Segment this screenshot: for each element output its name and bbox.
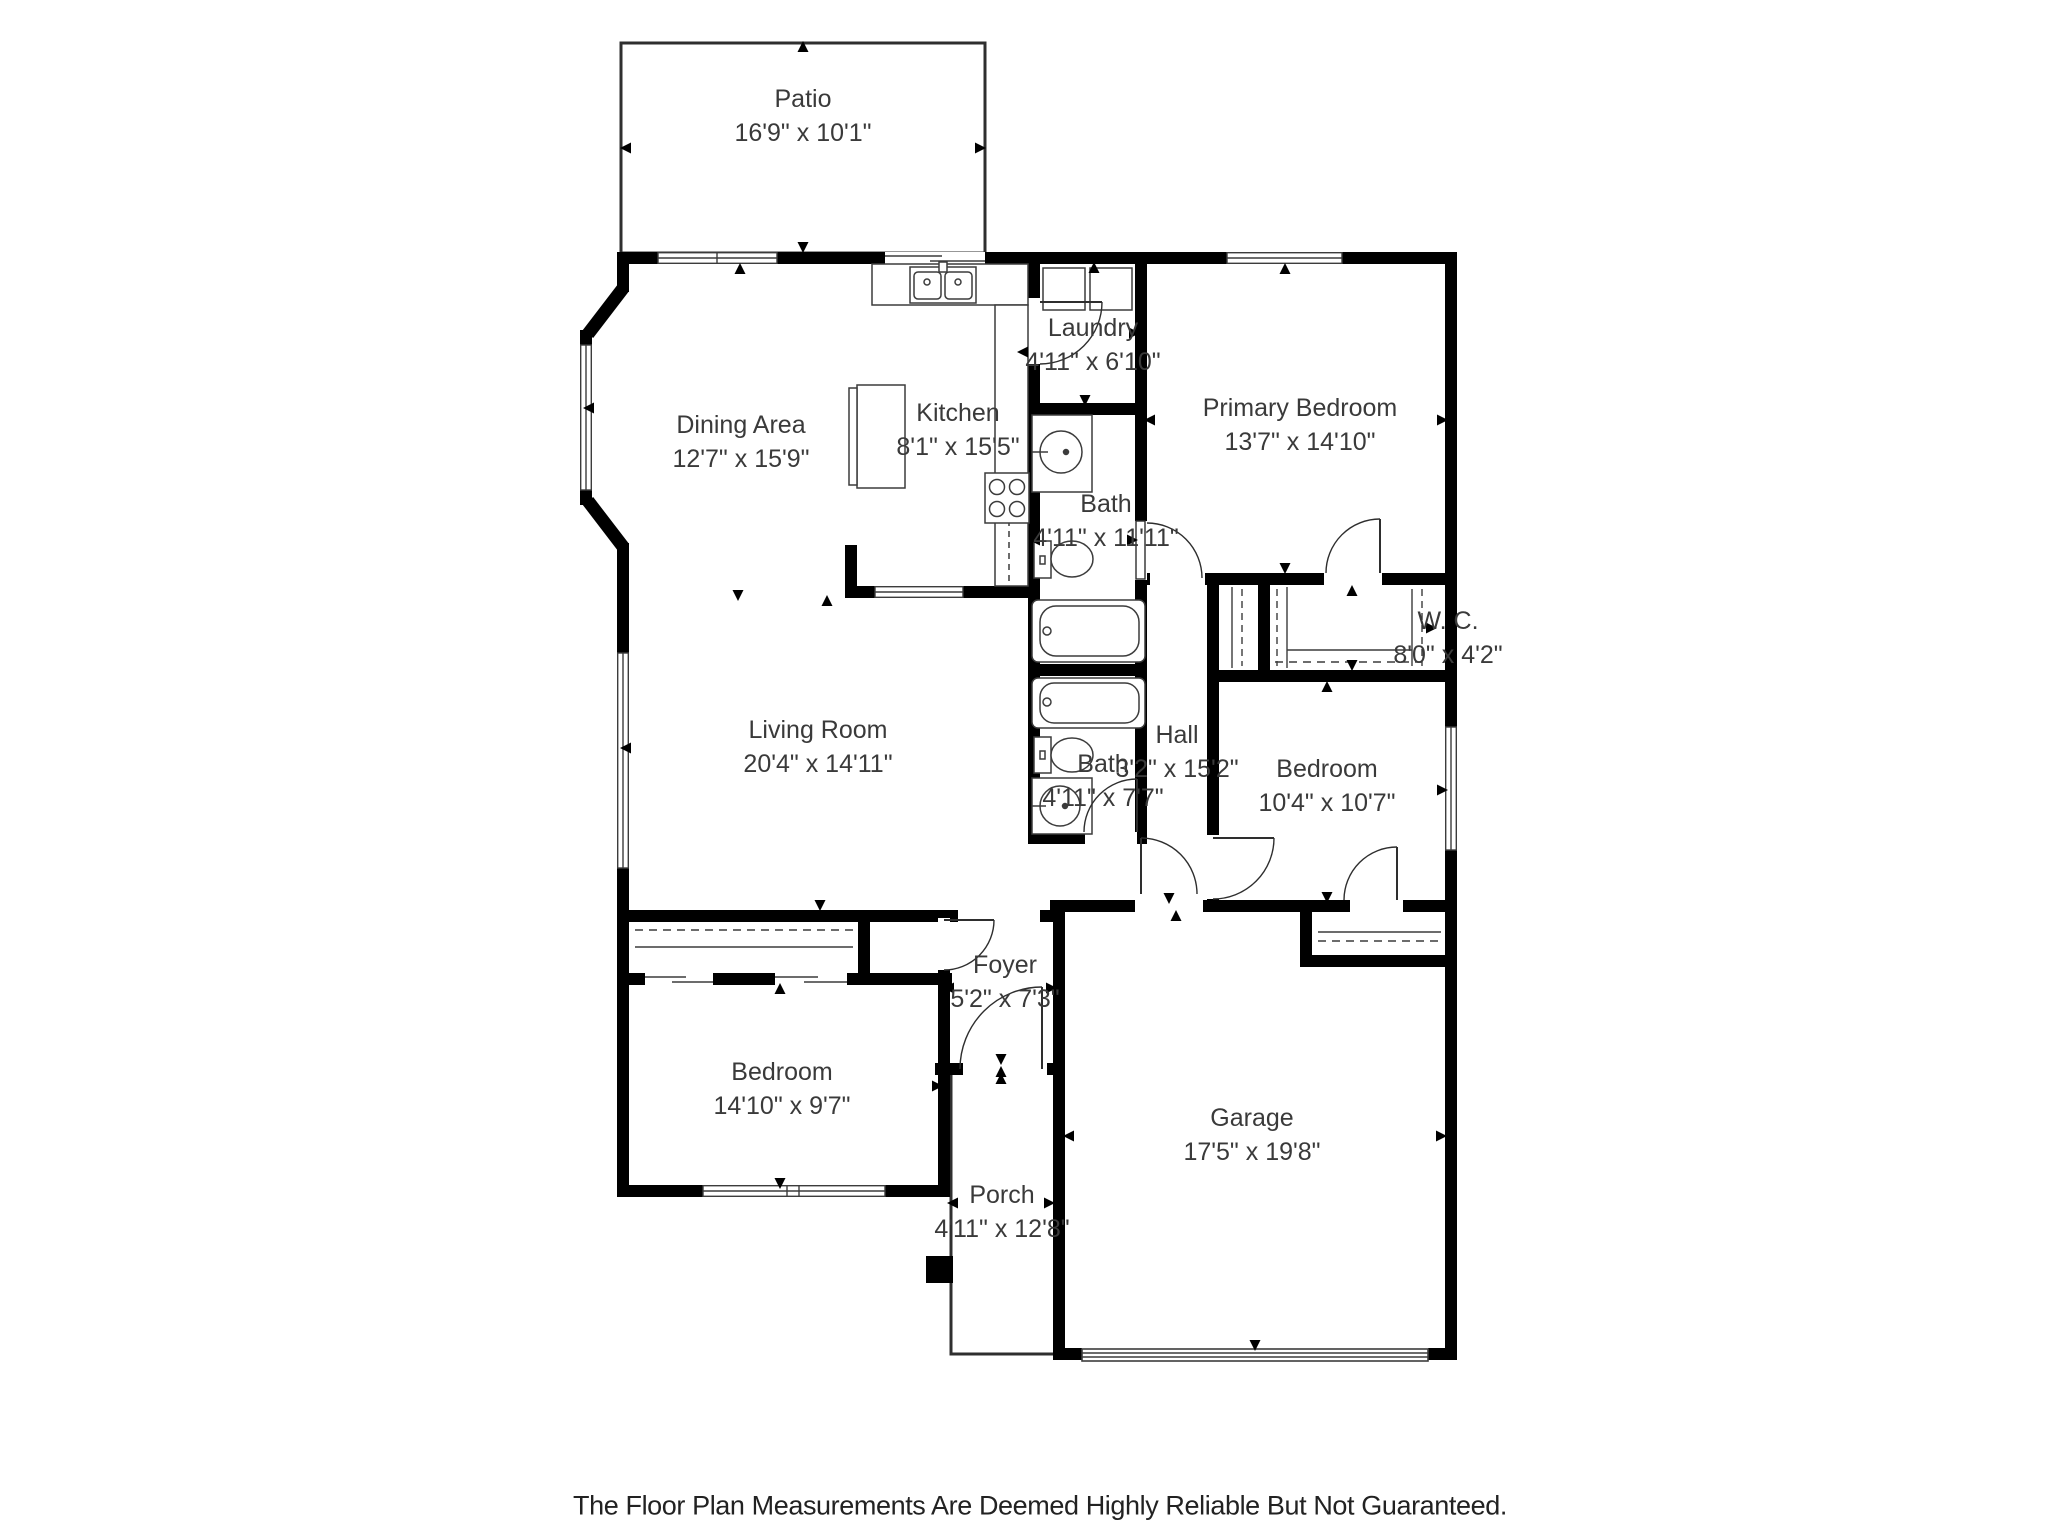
garage-entry-door xyxy=(1141,838,1197,894)
toilet-icon xyxy=(1034,737,1093,773)
kitchen-sink-icon xyxy=(910,262,976,303)
laundry-fixtures xyxy=(1043,268,1132,310)
laundry-door xyxy=(1040,302,1102,364)
porch-post xyxy=(926,1256,953,1283)
kitchen-counter-right xyxy=(995,305,1028,586)
porch-outline xyxy=(951,1075,1059,1354)
bedroom-right-closet-door xyxy=(1344,847,1397,900)
washer-icon xyxy=(1043,268,1085,310)
stove-icon xyxy=(985,473,1029,523)
bathtub-icon xyxy=(1032,678,1145,728)
walk-in-closet-door xyxy=(1326,519,1380,573)
vanity-sink-icon xyxy=(1032,778,1092,834)
toilet-icon xyxy=(1034,541,1093,578)
floor-plan-canvas: Patio16'9" x 10'1" Laundry4'11" x 6'10" … xyxy=(0,0,2048,1536)
foyer-closet-door xyxy=(944,920,994,970)
floor-plan-drawing xyxy=(0,0,2048,1536)
bedroom-right-door xyxy=(1213,838,1274,899)
wall-chamfers xyxy=(588,287,624,548)
kitchen-fixtures xyxy=(849,262,1029,586)
dryer-icon xyxy=(1090,268,1132,310)
dimension-ticks xyxy=(583,41,1448,1351)
bathtub-icon xyxy=(1032,600,1145,662)
vanity-sink-icon xyxy=(1032,415,1092,492)
kitchen-island xyxy=(849,385,905,488)
disclaimer-text: The Floor Plan Measurements Are Deemed H… xyxy=(573,1491,1507,1522)
patio-outline xyxy=(621,43,985,253)
